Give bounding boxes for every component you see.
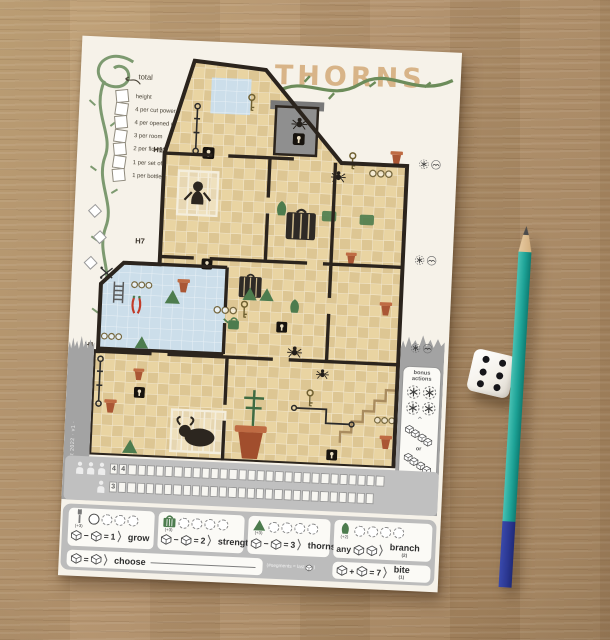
segments-note-suffix: ) [313, 566, 315, 571]
track-cell [165, 466, 174, 477]
track-cell [211, 468, 220, 479]
bonus-value: (+3) [165, 527, 173, 531]
action-label: choose [114, 555, 146, 566]
chevron-icon: 〉 [379, 542, 388, 559]
track-cell [229, 469, 238, 480]
progress-circles [88, 513, 138, 526]
mark-circle [393, 527, 404, 538]
bottles-icon [370, 170, 393, 177]
mark-circle [178, 518, 189, 529]
cube-icon [423, 438, 432, 447]
track-cell [338, 492, 347, 503]
mark-circle [380, 527, 391, 538]
eq: = [83, 554, 88, 564]
segments-note-prefix: (#segments = last [266, 564, 304, 571]
cube-icon [305, 564, 312, 571]
track-cell [330, 473, 339, 484]
track-cell [301, 490, 310, 501]
track-cell [145, 483, 154, 494]
track-cell [339, 474, 348, 485]
chevron-icon: 〉 [207, 532, 216, 549]
person-icon [86, 461, 97, 474]
track-cell [292, 490, 301, 501]
track-cell [238, 469, 247, 480]
rule-box-branch: (+2) any〉branch(2) [333, 520, 433, 562]
track-cell [321, 473, 330, 484]
person-icon [97, 462, 108, 475]
person-icon [96, 480, 107, 493]
or-label: or [416, 446, 422, 452]
mark-circle [294, 523, 305, 534]
mark-circle [354, 526, 365, 537]
action-sub: (2) [401, 552, 407, 560]
track-cell [367, 475, 376, 486]
flower-icon [414, 255, 424, 265]
track-cell [283, 489, 292, 500]
track-cell [347, 492, 356, 503]
chevron-up-icon: ⌃ [416, 417, 424, 424]
progress-circles [268, 522, 318, 535]
action-label: thorns [308, 540, 336, 551]
track-cell [201, 468, 210, 479]
cage-icon [286, 209, 317, 240]
die-pip [476, 379, 484, 387]
branch-formula: any〉branch(2) [336, 541, 429, 561]
track-cell [237, 487, 246, 498]
floor-bonus-pair [410, 343, 432, 354]
track-cell [192, 467, 201, 478]
die-pip [479, 367, 487, 375]
monkeycage-icon [177, 171, 219, 217]
flower-icon [422, 385, 437, 400]
eq: = [369, 567, 374, 577]
track-cell [284, 471, 293, 482]
mark-circle [101, 514, 112, 525]
lock-icon [202, 147, 214, 159]
track-cell: 4 [119, 464, 128, 475]
pencil-wood-tip [518, 235, 532, 253]
chevron-icon: 〉 [117, 528, 126, 545]
bonus-value: (+3) [255, 530, 263, 534]
segments-note: (#segments = last ) [266, 563, 315, 572]
game-sheet: total height4 per cut power cable4 per o… [58, 36, 462, 593]
num: 2 [200, 536, 205, 546]
track-cell [155, 483, 164, 494]
track-cell [329, 491, 338, 502]
bottles-icon [132, 282, 152, 289]
track-cell [311, 473, 320, 484]
track-cell [220, 468, 229, 479]
house-map [85, 53, 415, 469]
rules-panel: (+3) −=1〉grow (+3) −=2〉strength [60, 503, 437, 586]
mark-circle [281, 522, 292, 533]
track-cell [275, 471, 284, 482]
progress-circles [354, 526, 404, 539]
track-cell [128, 464, 137, 475]
track-cell [274, 489, 283, 500]
track-cell [137, 465, 146, 476]
op: − [173, 534, 178, 544]
op: − [263, 538, 268, 548]
thorns-formula: −=3〉thorns [250, 537, 326, 552]
flower-icon [406, 385, 421, 400]
choose-write-line [151, 561, 256, 568]
track-cell [219, 486, 228, 497]
track-cell [182, 485, 191, 496]
track-cell [357, 475, 366, 486]
greensq-icon [359, 214, 374, 225]
pot-icon [390, 151, 403, 165]
track-cell [247, 470, 256, 481]
track-cell [127, 482, 136, 493]
track-cell [357, 493, 366, 504]
bird-icon [426, 256, 436, 266]
track-cell [246, 488, 255, 499]
pencil [499, 226, 533, 588]
track-cell [173, 484, 182, 495]
flower-icon [421, 401, 436, 416]
track-cell [256, 488, 265, 499]
floor-bonus-icons [82, 36, 462, 53]
flower-icon [410, 343, 420, 353]
track-cell: 3 [109, 481, 118, 492]
mark-circle [307, 523, 318, 534]
track-cell [201, 486, 210, 497]
pencil-end [499, 521, 516, 588]
track-cell [174, 466, 183, 477]
chevron-icon: 〉 [297, 537, 306, 554]
chevron-icon: 〉 [383, 564, 392, 581]
bonus-value: (+3) [75, 524, 83, 528]
lock-icon [293, 133, 305, 145]
bonus-flower-circles [405, 385, 436, 416]
bird-icon [431, 160, 441, 170]
lock-icon [276, 321, 287, 332]
mark-circle [88, 513, 99, 524]
track-cell [376, 475, 385, 486]
eq: = [104, 531, 109, 541]
mark-circle [268, 522, 279, 533]
any-label: any [336, 544, 351, 555]
progress-circles [178, 518, 228, 531]
chimney [274, 106, 318, 156]
grow-formula: −=1〉grow [71, 529, 151, 545]
track-cell [293, 472, 302, 483]
person-icons [69, 460, 108, 475]
rule-box-thorns: (+3) −=3〉thorns [247, 516, 331, 558]
track-cell [265, 488, 274, 499]
die-pip [493, 383, 501, 391]
bite-rule: +=7〉bite(1) [332, 562, 431, 583]
mark-circle [191, 518, 202, 529]
bonus-actions-box: bonus actions ⌃ or [399, 367, 441, 482]
bonus-value: (+2) [340, 535, 348, 539]
strength-formula: −=2〉strength [160, 533, 240, 549]
track-cell [311, 491, 320, 502]
op: + [349, 566, 354, 576]
bullcage-icon [170, 409, 226, 453]
track-cell [146, 465, 155, 476]
bonus-title-line2: actions [412, 376, 432, 383]
bottles-icon [101, 333, 121, 340]
flower-icon [419, 159, 429, 169]
bottles-icon [214, 306, 237, 313]
die-pip [482, 356, 490, 364]
die-pip [496, 371, 504, 379]
track-cell [266, 470, 275, 481]
person-icon [75, 461, 86, 474]
track-cell [302, 472, 311, 483]
num: 3 [290, 540, 295, 550]
thorn-triangle-icon [252, 518, 267, 531]
mark-circle [127, 515, 138, 526]
choose-rule: =〉choose [66, 549, 263, 575]
track-cell [164, 484, 173, 495]
floor-bonus-pair [419, 159, 441, 170]
track-cell [228, 487, 237, 498]
num: 1 [110, 531, 115, 541]
track-cell [118, 482, 127, 493]
cube-chain-1 [404, 425, 435, 447]
track-cell [136, 483, 145, 494]
rule-box-strength: (+3) −=2〉strength [157, 512, 245, 554]
person-icons [68, 478, 107, 493]
mark-circle [217, 519, 228, 530]
op: − [84, 530, 89, 540]
mark-circle [367, 526, 378, 537]
track-cell [256, 470, 265, 481]
mark-circle [204, 519, 215, 530]
num: 7 [376, 567, 381, 577]
action-label: grow [128, 532, 150, 543]
track-cell: 4 [110, 463, 119, 474]
bird-icon [422, 343, 432, 353]
track-cell [366, 493, 375, 504]
track-cell [191, 485, 200, 496]
lock-icon [134, 387, 145, 398]
lock-icon [326, 449, 337, 460]
track-cell [348, 474, 357, 485]
track-cell [320, 491, 329, 502]
track-cell [155, 465, 164, 476]
flower-icon [405, 401, 420, 416]
mark-circle [114, 515, 125, 526]
die-pip [498, 359, 506, 367]
floor-bonus-pair [414, 255, 436, 266]
track-cell [210, 486, 219, 497]
bottles-icon [374, 417, 394, 424]
track-cell [183, 467, 192, 478]
eq: = [283, 539, 288, 549]
action-sub: (1) [398, 573, 404, 581]
cage-icon [162, 513, 177, 528]
pencil-lead [519, 226, 533, 236]
chevron-icon: 〉 [103, 551, 112, 568]
photo-scene: total height4 per cut power cable4 per o… [0, 0, 610, 640]
eq: = [193, 535, 198, 545]
rule-box-grow: (+3) −=1〉grow [67, 508, 155, 550]
